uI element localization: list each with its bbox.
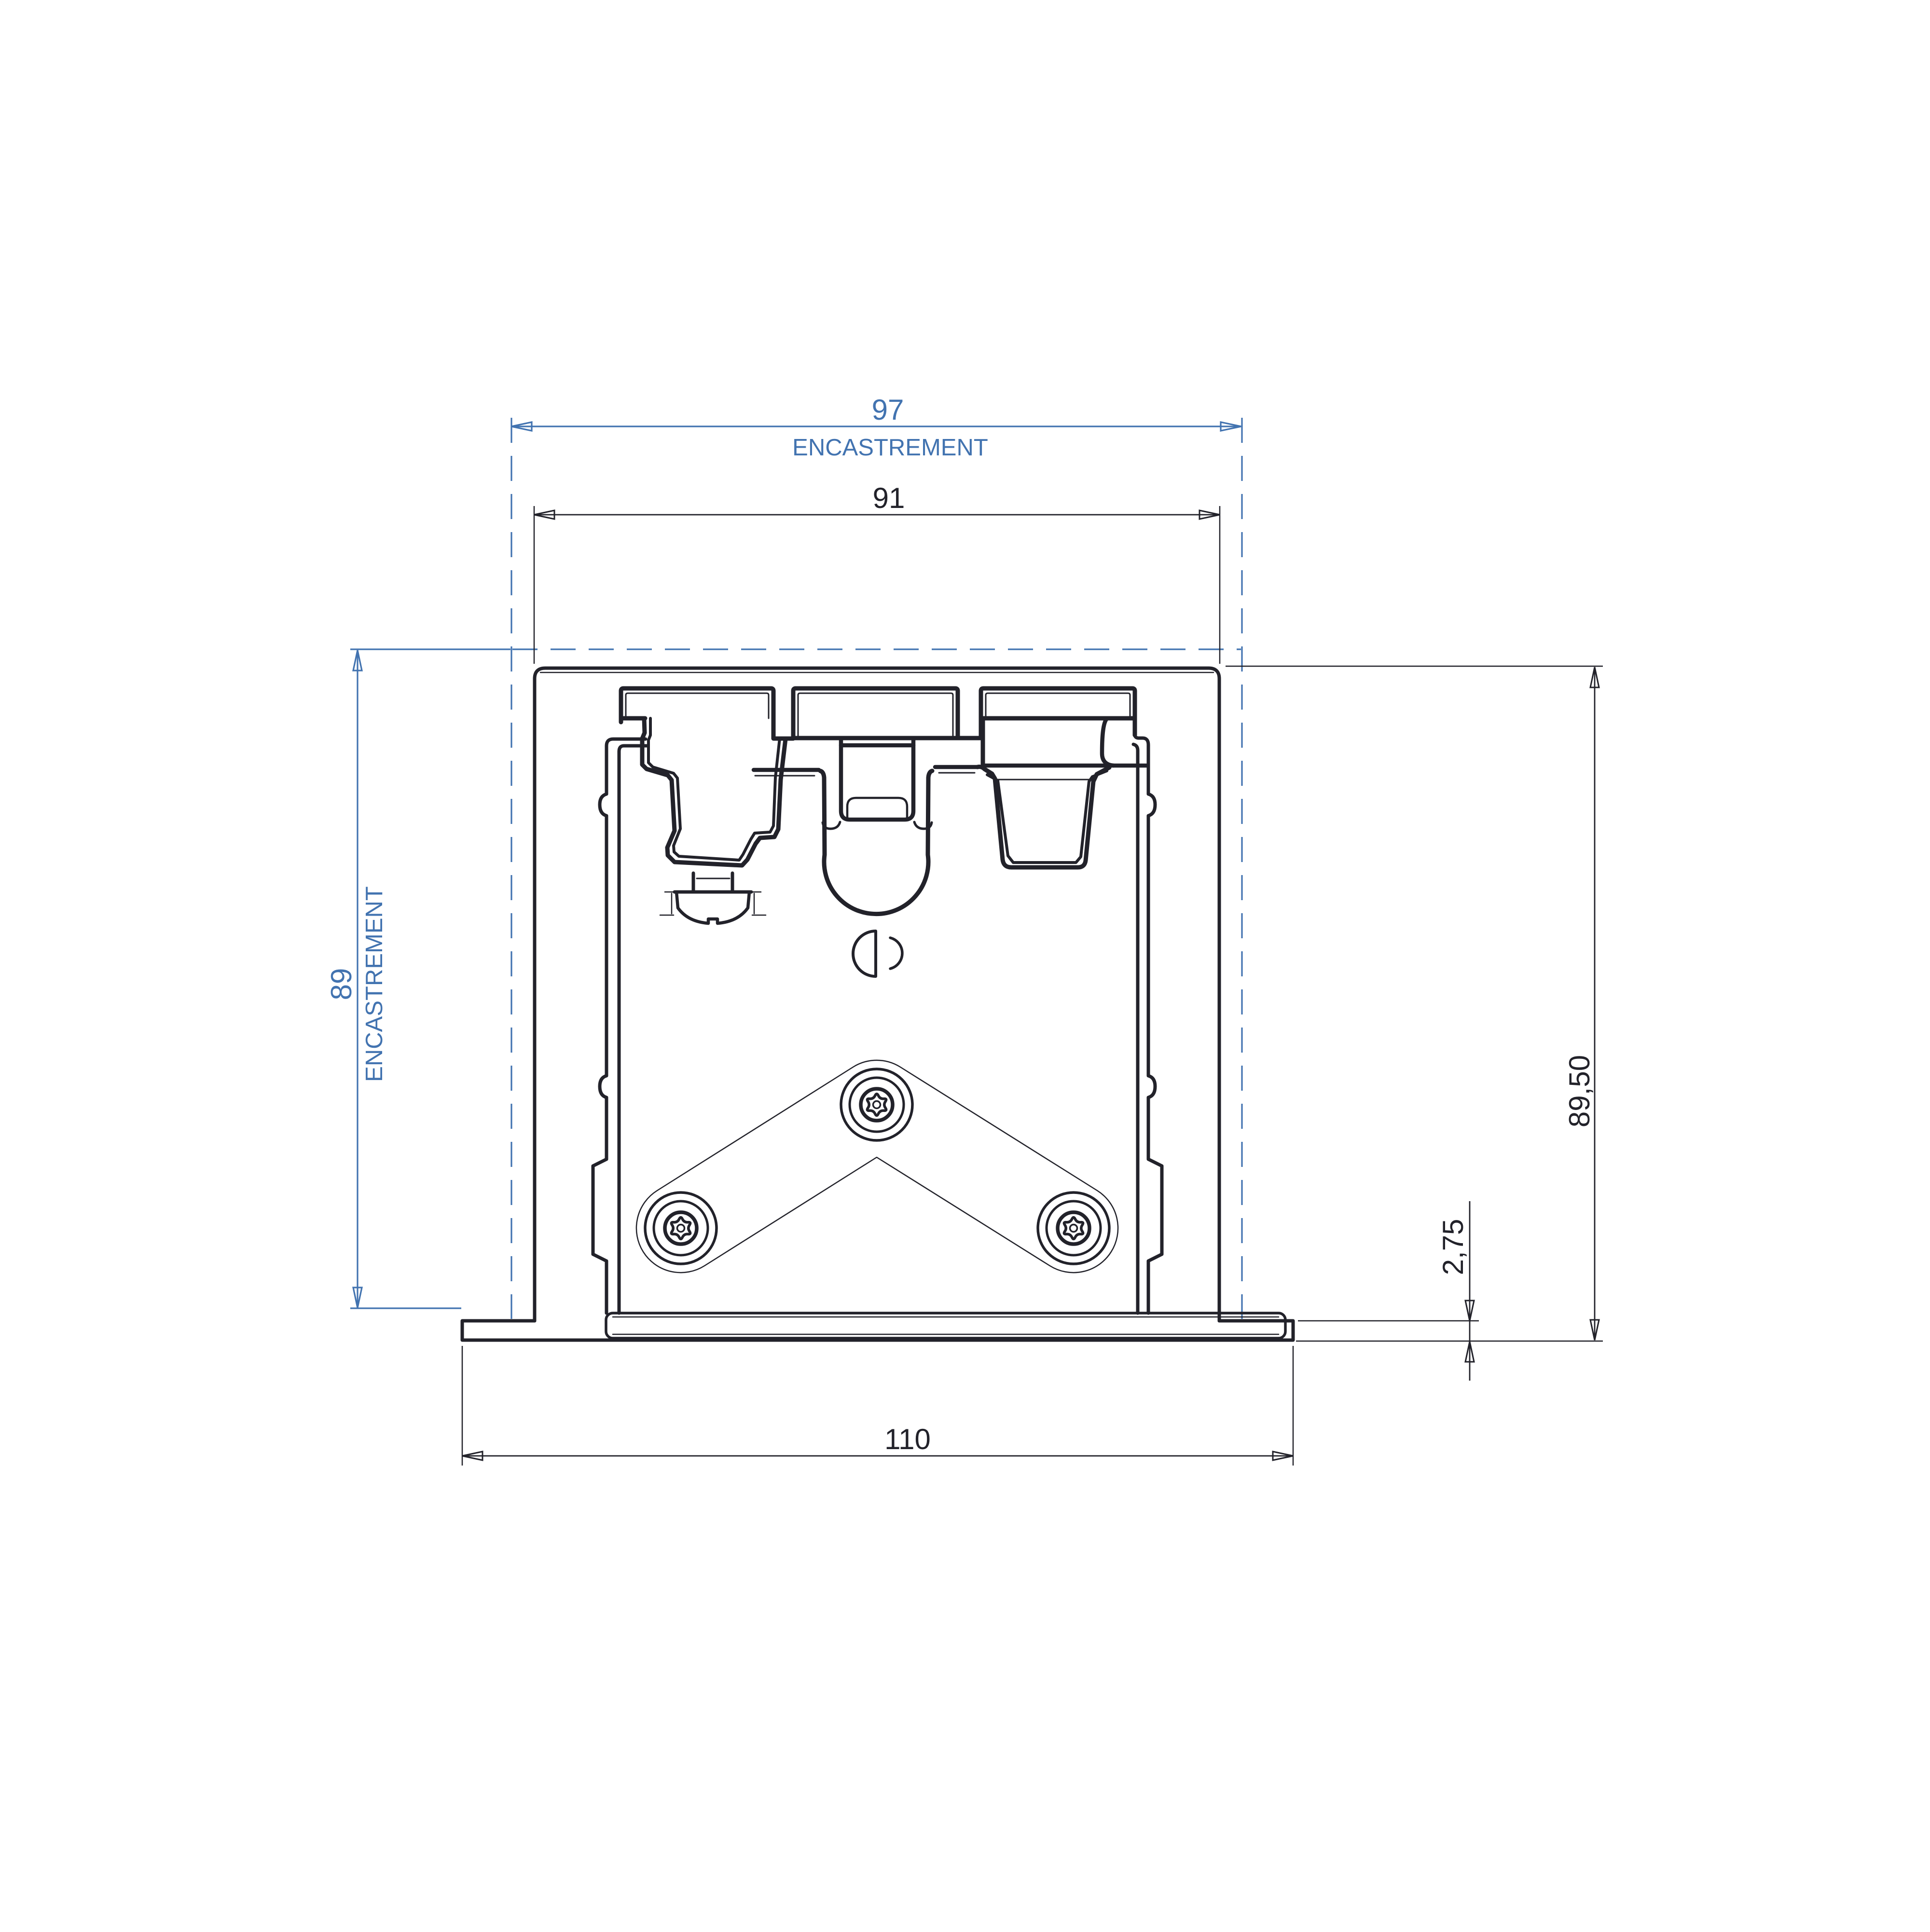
svg-text:89,50: 89,50 bbox=[1563, 1055, 1596, 1127]
svg-text:ENCASTREMENT: ENCASTREMENT bbox=[361, 886, 387, 1082]
svg-text:110: 110 bbox=[884, 1423, 931, 1455]
svg-text:89: 89 bbox=[325, 968, 358, 1000]
svg-text:ENCASTREMENT: ENCASTREMENT bbox=[792, 435, 988, 461]
svg-text:97: 97 bbox=[872, 394, 904, 426]
svg-text:91: 91 bbox=[873, 482, 905, 514]
svg-text:2,75: 2,75 bbox=[1437, 1219, 1469, 1275]
